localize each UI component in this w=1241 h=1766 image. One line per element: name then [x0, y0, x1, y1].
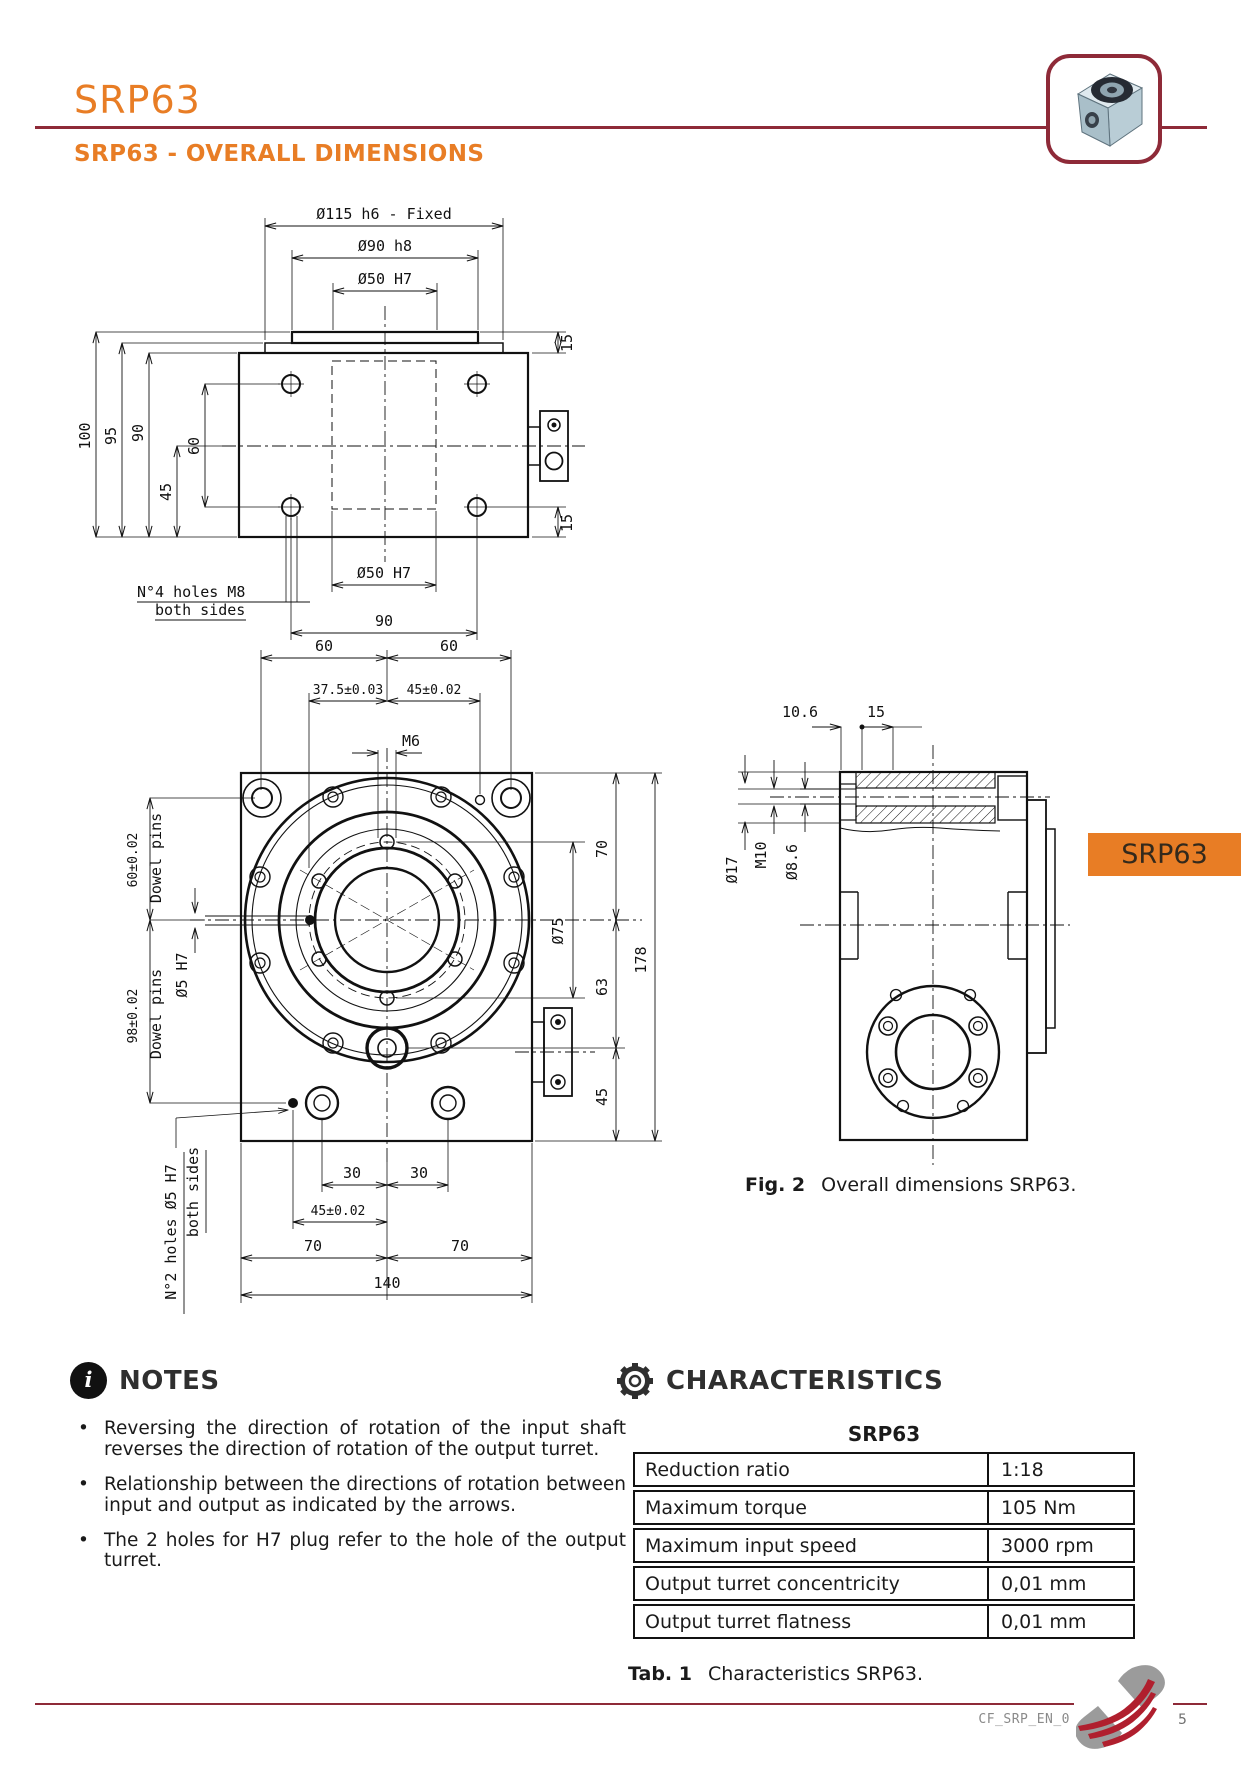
characteristics-section: CHARACTERISTICS SRP63 Reduction ratio 1:…	[616, 1362, 1161, 1685]
notes-section: i NOTES Reversing the direction of rotat…	[70, 1362, 626, 1586]
notes-list: Reversing the direction of rotation of t…	[70, 1419, 626, 1572]
dim-label: 100	[76, 422, 94, 449]
dim-label: 60	[315, 637, 333, 655]
drawing-note: N°4 holes M8	[137, 583, 245, 601]
front-view: 60 60 37.5±0.03 45±0.02 M6 60±0.02 Dowel…	[126, 637, 662, 1314]
table-cell-label: Maximum torque	[635, 1492, 989, 1523]
dim-label: 178	[632, 946, 650, 973]
list-item: The 2 holes for H7 plug refer to the hol…	[70, 1531, 626, 1573]
dim-label: M6	[402, 732, 420, 750]
top-view: Ø115 h6 - Fixed Ø90 h8 Ø50 H7 100	[76, 205, 585, 640]
drawing-note: both sides	[155, 601, 245, 619]
figure-caption-label: Fig. 2	[745, 1174, 805, 1196]
gear-icon	[616, 1362, 654, 1400]
dim-label: Dowel pins	[147, 969, 165, 1059]
table-row: Maximum torque 105 Nm	[633, 1490, 1135, 1525]
dim-label: Ø50 H7	[358, 270, 412, 288]
table-cell-label: Output turret flatness	[635, 1606, 989, 1637]
dim-label: 90	[375, 612, 393, 630]
datasheet-page: SRP63 SRP63 - OVERALL DIMENSIONS	[0, 0, 1241, 1766]
dim-label: 45	[157, 483, 175, 501]
table-cell-value: 105 Nm	[989, 1497, 1076, 1519]
table-row: Output turret concentricity 0,01 mm	[633, 1566, 1135, 1601]
dim-label: 10.6	[782, 703, 818, 721]
table-cell-value: 0,01 mm	[989, 1611, 1086, 1633]
drawing-note: both sides	[184, 1147, 202, 1237]
dim-label: 70	[593, 840, 611, 858]
dim-label: 30	[410, 1164, 428, 1182]
dim-label: 98±0.02	[126, 989, 141, 1044]
characteristics-table: Reduction ratio 1:18 Maximum torque 105 …	[633, 1452, 1135, 1639]
dim-label: 60	[440, 637, 458, 655]
table-cell-value: 1:18	[989, 1459, 1044, 1481]
dim-label: 63	[593, 978, 611, 996]
side-tab-srp63: SRP63	[1088, 833, 1241, 876]
dim-label: Dowel pins	[147, 813, 165, 903]
company-logo	[1076, 1664, 1176, 1752]
dim-label: 45	[593, 1088, 611, 1106]
dim-label: Ø50 H7	[357, 564, 411, 582]
table-title: SRP63	[633, 1422, 1135, 1446]
page-number: 5	[1178, 1712, 1187, 1728]
figure-caption-text: Overall dimensions SRP63.	[821, 1174, 1076, 1196]
document-code: CF_SRP_EN_0	[940, 1712, 1070, 1727]
dim-label: 70	[304, 1237, 322, 1255]
dim-label: 15	[867, 703, 885, 721]
table-cell-label: Output turret concentricity	[635, 1568, 989, 1599]
dim-label: Ø75	[549, 917, 567, 944]
dim-label: 45±0.02	[407, 683, 462, 698]
dim-label: Ø8.6	[783, 844, 801, 880]
figure-caption: Fig. 2Overall dimensions SRP63.	[745, 1174, 1076, 1196]
dim-label: Ø5 H7	[173, 952, 191, 997]
dim-label: 45±0.02	[311, 1204, 366, 1219]
dim-label: 15	[558, 514, 576, 532]
table-cell-label: Reduction ratio	[635, 1454, 989, 1485]
table-caption-label: Tab. 1	[628, 1663, 692, 1685]
footer-rule	[35, 1703, 1074, 1705]
list-item: Relationship between the directions of r…	[70, 1475, 626, 1517]
dim-label: Ø17	[723, 856, 741, 883]
list-item: Reversing the direction of rotation of t…	[70, 1419, 626, 1461]
notes-heading: NOTES	[119, 1366, 220, 1396]
technical-drawing: Ø115 h6 - Fixed Ø90 h8 Ø50 H7 100	[0, 0, 1241, 1370]
dim-label: 60±0.02	[126, 833, 141, 888]
product-photo-image	[1050, 58, 1150, 152]
characteristics-heading: CHARACTERISTICS	[666, 1366, 943, 1396]
table-cell-value: 3000 rpm	[989, 1535, 1094, 1557]
dim-label: 95	[102, 427, 120, 445]
dim-label: 15	[558, 334, 576, 352]
dim-label: 37.5±0.03	[313, 683, 383, 698]
table-row: Reduction ratio 1:18	[633, 1452, 1135, 1487]
dim-label: M10	[752, 841, 770, 868]
info-icon: i	[70, 1362, 107, 1399]
dim-label: 70	[451, 1237, 469, 1255]
dim-label: Ø115 h6 - Fixed	[316, 205, 451, 223]
product-photo	[1046, 54, 1162, 164]
footer-rule	[1173, 1703, 1207, 1705]
dim-label: 30	[343, 1164, 361, 1182]
table-caption-text: Characteristics SRP63.	[708, 1663, 923, 1685]
dim-label: 90	[129, 424, 147, 442]
table-cell-label: Maximum input speed	[635, 1530, 989, 1561]
table-row: Maximum input speed 3000 rpm	[633, 1528, 1135, 1563]
table-cell-value: 0,01 mm	[989, 1573, 1086, 1595]
dim-label: Ø90 h8	[358, 237, 412, 255]
drawing-note: N°2 holes Ø5 H7	[162, 1164, 180, 1299]
side-view: 10.6 15 Ø17 M10 Ø8.6	[723, 703, 1070, 1165]
dim-label: 140	[373, 1274, 400, 1292]
table-row: Output turret flatness 0,01 mm	[633, 1604, 1135, 1639]
dim-label: 60	[185, 437, 203, 455]
